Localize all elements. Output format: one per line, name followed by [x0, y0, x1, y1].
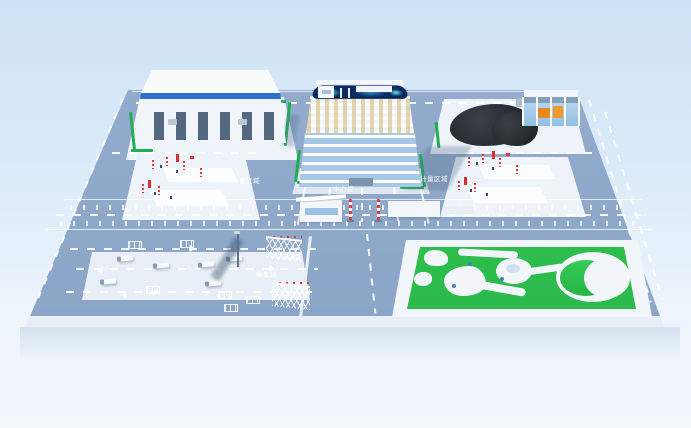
marker-pole — [516, 165, 518, 174]
marker-pole — [152, 160, 154, 169]
back-gate-post — [348, 88, 350, 98]
marker-pole — [200, 168, 202, 177]
garden-shrub — [500, 277, 504, 281]
back-gate-post — [340, 88, 342, 98]
stall-grid-marking — [218, 291, 232, 299]
lane-arrow — [190, 245, 195, 253]
parking-lot-label: 停车场 — [256, 272, 277, 279]
red-flag — [464, 177, 467, 185]
figure — [154, 192, 156, 195]
garden-shrub — [452, 284, 456, 288]
road-dash — [448, 152, 600, 154]
marker-pole — [166, 157, 168, 166]
center-building-label: 中心楼 — [333, 186, 354, 193]
garden-path-blob — [414, 272, 432, 286]
barrier-pillar — [377, 199, 380, 220]
garden-plaza-inner — [584, 258, 630, 298]
marker-pole — [183, 161, 185, 170]
figure — [492, 167, 494, 170]
marker-pole — [458, 181, 460, 190]
lane-arrow — [122, 291, 127, 299]
garden-shrub — [468, 262, 472, 266]
stall-grid-marking — [246, 296, 260, 304]
shed-columns — [522, 97, 580, 126]
road-line — [64, 199, 642, 200]
light-mast-head — [234, 231, 240, 234]
red-flag — [176, 154, 179, 162]
stall-grid-marking — [224, 304, 238, 312]
light-mast — [237, 233, 239, 267]
road-dash — [76, 268, 318, 270]
gatehouse-window-band — [305, 208, 338, 215]
figure — [470, 189, 472, 192]
stall-grid-marking — [128, 241, 142, 249]
red-flag — [190, 156, 194, 159]
road-line — [46, 229, 652, 230]
barrier-pillar — [349, 199, 352, 220]
red-flag — [506, 153, 510, 156]
figure — [476, 162, 478, 165]
marker-pole — [158, 186, 160, 195]
back-gatehouse-window — [322, 90, 331, 94]
red-flag — [148, 180, 151, 188]
weighbridge-right-label: 计量区域 — [420, 176, 448, 183]
marker-pole — [142, 184, 144, 193]
shed-roof — [524, 90, 578, 97]
figure — [486, 193, 488, 196]
garden-pond — [506, 264, 520, 273]
weighbridge-left-label: 计量区域 — [232, 178, 260, 185]
docked-truck — [238, 119, 247, 125]
figure — [170, 196, 172, 199]
gate-wall — [388, 201, 440, 217]
marker-pole — [499, 158, 501, 167]
back-gate-wall — [356, 86, 392, 92]
road-ticks — [70, 205, 622, 210]
lattice-gantry — [272, 282, 310, 310]
marker-pole — [482, 154, 484, 163]
hedge — [131, 149, 153, 152]
platform-reflection — [20, 327, 680, 361]
lattice-gantry — [266, 236, 302, 262]
garden-path-blob — [424, 250, 448, 266]
road-dash — [112, 152, 262, 154]
stall-grid-marking — [146, 286, 160, 294]
site-3d-view-canvas[interactable]: 中心楼 停车场 计量区域 计量区域 — [0, 0, 691, 428]
figure — [160, 165, 162, 168]
marker-pole — [474, 183, 476, 192]
marker-pole — [468, 157, 470, 166]
figure — [176, 170, 178, 173]
lane-arrow — [98, 267, 103, 275]
red-flag — [492, 151, 495, 159]
gate-wall-extension — [444, 206, 474, 214]
pillar-base — [347, 220, 354, 222]
docked-truck — [168, 119, 177, 125]
pillar-base — [375, 220, 382, 222]
